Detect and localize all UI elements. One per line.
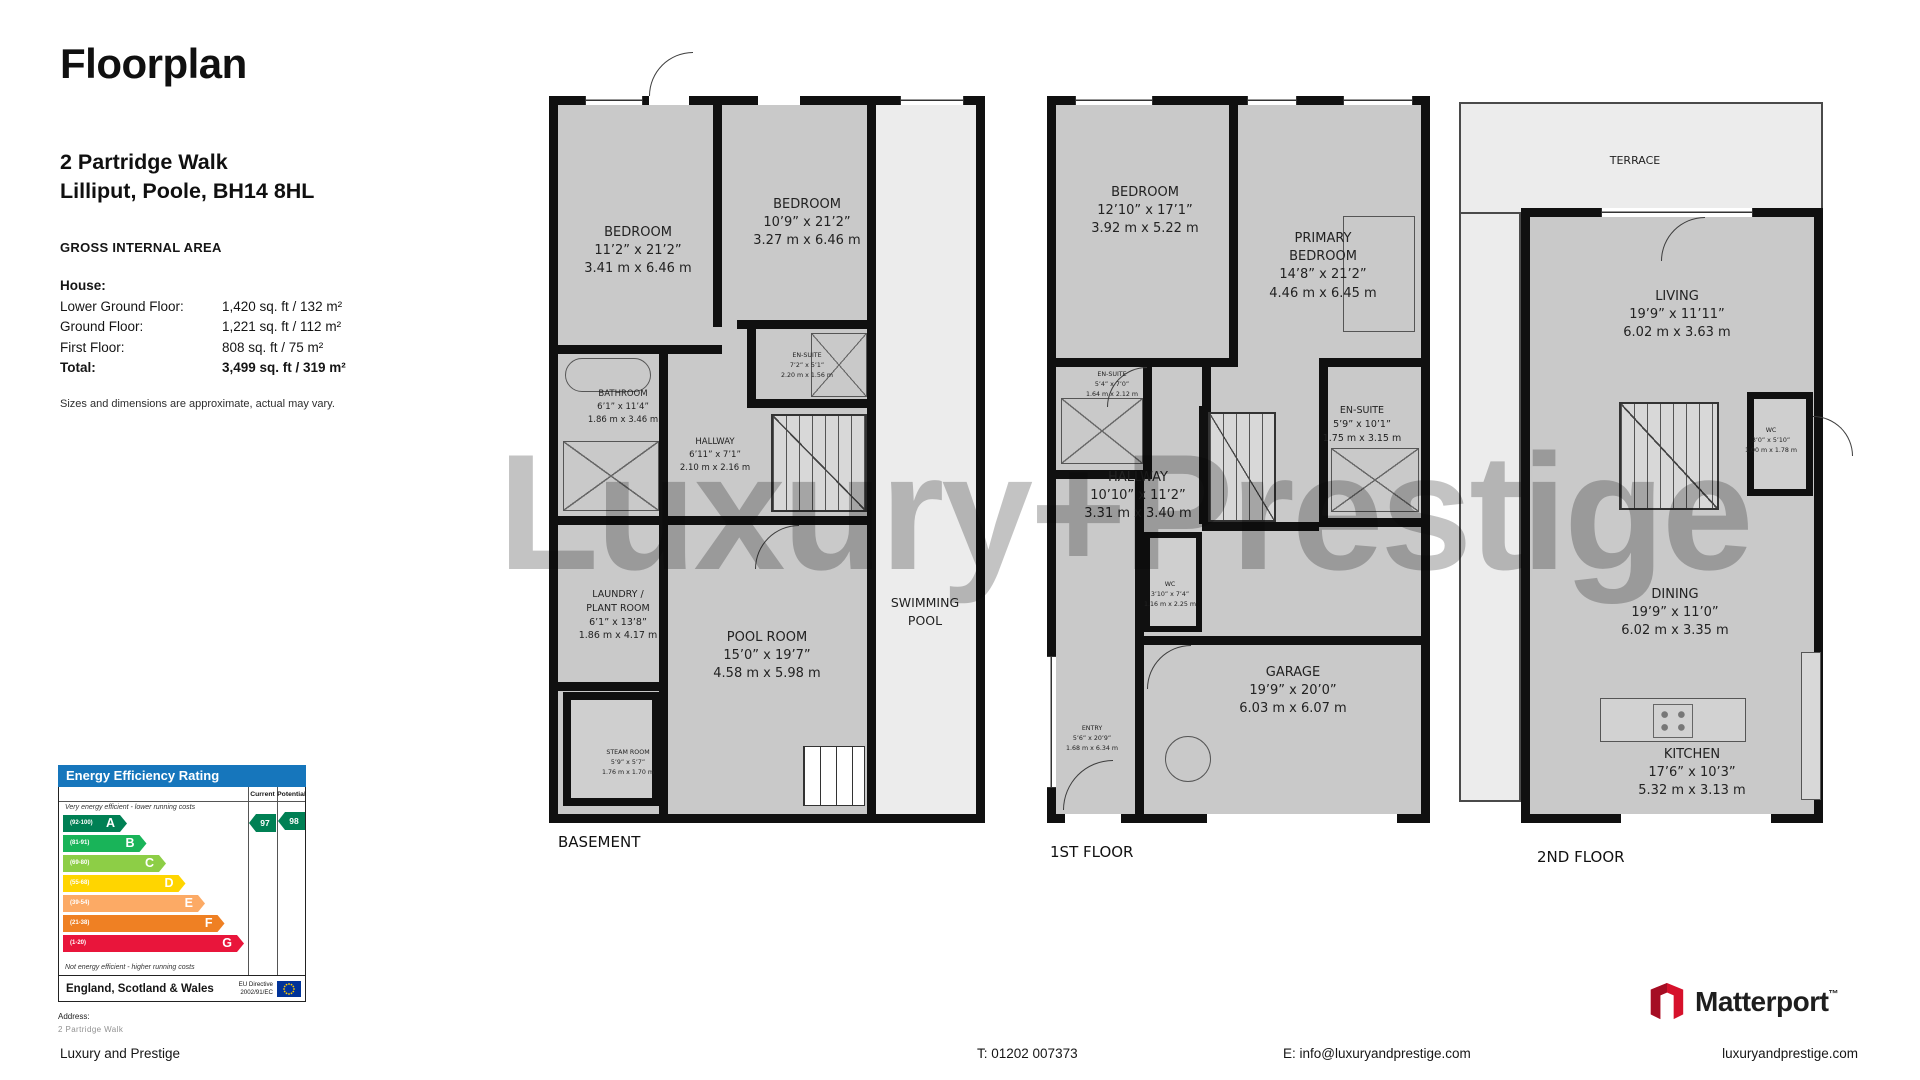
epc-top-note: Very energy efficient - lower running co… — [65, 804, 195, 811]
matterport-logo: Matterport™ — [1647, 982, 1838, 1022]
epc-col-current: Current — [248, 787, 277, 801]
room-label-laundry: LAUNDRY / PLANT ROOM 6’1” x 13’8” 1.86 m… — [560, 588, 676, 643]
room-label-dining: DINING 19’9” x 11’0” 6.02 m x 3.35 m — [1605, 586, 1745, 641]
wall — [1319, 518, 1421, 527]
trademark-symbol: ™ — [1828, 989, 1838, 1000]
room-label-primary-bedroom: PRIMARY BEDROOM 14’8” x 21’2” 4.46 m x 6… — [1253, 230, 1393, 303]
wall — [1135, 479, 1144, 814]
room-label-bathroom: BATHROOM 6’1” x 11’4” 1.86 m x 3.46 m — [563, 388, 683, 426]
room-label-garage: GARAGE 19’9” x 20’0” 6.03 m x 6.07 m — [1223, 664, 1363, 719]
epc-address-value: 2 Partridge Walk — [58, 1025, 306, 1034]
wall — [558, 516, 668, 525]
room-label-living: LIVING 19’9” x 11’11” 6.02 m x 3.63 m — [1607, 288, 1747, 343]
gia-row-first: First Floor: 808 sq. ft / 75 m² — [60, 338, 360, 359]
matterport-logo-icon — [1647, 982, 1687, 1022]
floor-label-second: 2ND FLOOR — [1537, 848, 1625, 866]
wall — [737, 320, 876, 329]
door-opening — [758, 96, 800, 105]
door-opening — [1621, 814, 1771, 823]
shower-icon — [1331, 448, 1419, 512]
room-label-wc: WC 3’10” x 7’4” 1.16 m x 2.25 m — [1139, 580, 1201, 609]
divider — [277, 787, 278, 975]
epc-current-arrow: 97 — [249, 814, 276, 832]
room-label-entry: ENTRY 5’6” x 20’9” 1.68 m x 6.34 m — [1051, 724, 1133, 753]
room-label-pool-room: POOL ROOM 15’0” x 19’7” 4.58 m x 5.98 m — [667, 629, 867, 684]
wall — [747, 399, 876, 408]
door-arc-icon — [1813, 416, 1853, 456]
address-line1: 2 Partridge Walk — [60, 148, 314, 177]
kitchen-counter — [1801, 652, 1821, 800]
room-label-ensuite-right: EN-SUITE 5’9” x 10’1” 1.75 m x 3.15 m — [1310, 404, 1414, 445]
epc-address: Address: 2 Partridge Walk — [58, 1012, 306, 1034]
epc-band-row: (21-38)F — [63, 915, 244, 935]
room-label-steam-room: STEAM ROOM 5’9” x 5’7” 1.76 m x 1.70 m — [573, 748, 683, 777]
room-label-hallway: HALLWAY 10’10” x 11’2” 3.31 m x 3.40 m — [1068, 469, 1208, 524]
window-marker — [900, 96, 964, 105]
room-label-kitchen: KITCHEN 17’6” x 10’3” 5.32 m x 3.13 m — [1622, 746, 1762, 801]
wall — [1135, 636, 1421, 645]
window-marker — [1601, 208, 1753, 217]
epc-chart: Energy Efficiency Rating Current Potenti… — [58, 765, 306, 1034]
wall — [1319, 367, 1328, 527]
room-label-swimming-pool: SWIMMING POOL — [877, 594, 973, 629]
window-marker — [1047, 656, 1056, 788]
wall — [1202, 522, 1319, 531]
bathtub-icon — [565, 358, 651, 392]
footer-website: luxuryandprestige.com — [1722, 1046, 1858, 1061]
epc-bottom-note: Not energy efficient - higher running co… — [65, 964, 195, 971]
size-disclaimer: Sizes and dimensions are approximate, ac… — [60, 398, 335, 410]
gia-row-lower-ground: Lower Ground Floor: 1,420 sq. ft / 132 m… — [60, 297, 360, 318]
footer-email: E: info@luxuryandprestige.com — [1283, 1046, 1471, 1061]
room-label-terrace: TERRACE — [1565, 154, 1705, 167]
wall — [659, 516, 876, 525]
footer-company: Luxury and Prestige — [60, 1046, 180, 1061]
epc-band-row: (92-100)A — [63, 815, 244, 835]
hob-icon — [1653, 704, 1693, 738]
window-marker — [585, 96, 643, 105]
property-address: 2 Partridge Walk Lilliput, Poole, BH14 8… — [60, 148, 314, 206]
epc-band-row: (81-91)B — [63, 835, 244, 855]
epc-band-row: (1-20)G — [63, 935, 244, 955]
second-floor-plan: TERRACE LIVING 19’9” x 11’11” 6.02 m x 3… — [1451, 96, 1832, 866]
wall — [1229, 105, 1238, 358]
page-title: Floorplan — [60, 40, 247, 88]
shower-icon — [563, 441, 659, 511]
gia-row-total: Total: 3,499 sq. ft / 319 m² — [60, 358, 360, 379]
address-line2: Lilliput, Poole, BH14 8HL — [60, 177, 314, 206]
gia-row-ground: Ground Floor: 1,221 sq. ft / 112 m² — [60, 317, 360, 338]
room-label-ensuite: EN-SUITE 7’2” x 5’1” 2.20 m x 1.56 m — [757, 351, 857, 380]
epc-region: England, Scotland & Wales — [66, 983, 214, 995]
wall — [747, 329, 756, 408]
divider — [59, 801, 305, 802]
matterport-wordmark: Matterport™ — [1695, 986, 1838, 1018]
epc-band-row: (69-80)C — [63, 855, 244, 875]
turning-circle-icon — [1165, 736, 1211, 782]
stairs-icon — [1208, 412, 1276, 522]
epc-title: Energy Efficiency Rating — [58, 765, 306, 787]
gia-row-house: House: — [60, 276, 360, 297]
eu-flag-icon — [277, 981, 301, 997]
stairs-icon — [771, 414, 867, 512]
epc-bands: (92-100)A(81-91)B(69-80)C(55-68)D(39-54)… — [63, 815, 244, 955]
room-label-bedroom: BEDROOM 12’10” x 17’1” 3.92 m x 5.22 m — [1075, 184, 1215, 239]
wall — [713, 105, 722, 327]
floor-label-first: 1ST FLOOR — [1050, 843, 1133, 861]
shower-icon — [1061, 398, 1143, 464]
door-opening — [1065, 814, 1121, 823]
floor-label-basement: BASEMENT — [558, 833, 640, 851]
epc-band-row: (55-68)D — [63, 875, 244, 895]
epc-potential-arrow: 98 — [278, 812, 305, 830]
door-opening — [649, 96, 689, 105]
wall — [1319, 358, 1421, 367]
epc-col-potential: Potential — [277, 787, 306, 801]
room-label-wc: WC 3’0” x 5’10” 1.00 m x 1.78 m — [1742, 426, 1800, 455]
pool-steps-icon — [803, 746, 865, 806]
first-floor-plan: BEDROOM 12’10” x 17’1” 3.92 m x 5.22 m P… — [1047, 96, 1437, 866]
divider — [248, 787, 249, 975]
garage-door-opening — [1207, 814, 1397, 823]
door-arc-icon — [649, 52, 693, 96]
room-label-bedroom2: BEDROOM 10’9” x 21’2” 3.27 m x 6.46 m — [741, 196, 873, 251]
gia-heading: GROSS INTERNAL AREA — [60, 240, 222, 255]
epc-body: Current Potential Very energy efficient … — [58, 787, 306, 976]
room-label-ensuite-left: EN-SUITE 5’4” x 7’0” 1.64 m x 2.12 m — [1062, 370, 1162, 399]
footer-phone: T: 01202 007373 — [977, 1046, 1078, 1061]
epc-region-row: England, Scotland & Wales EU Directive 2… — [58, 976, 306, 1002]
epc-address-label: Address: — [58, 1012, 306, 1021]
window-marker — [1343, 96, 1413, 105]
stairs-icon — [1619, 402, 1719, 510]
room-label-bedroom1: BEDROOM 11’2” x 21’2” 3.41 m x 6.46 m — [568, 224, 708, 279]
wall — [1056, 358, 1238, 367]
swimming-pool-area — [873, 105, 976, 814]
room-label-hallway: HALLWAY 6’11” x 7’1” 2.10 m x 2.16 m — [655, 436, 775, 474]
floorplan-page: Floorplan 2 Partridge Walk Lilliput, Poo… — [0, 0, 1920, 1080]
wall — [558, 682, 668, 691]
wall — [558, 345, 722, 354]
epc-band-row: (39-54)E — [63, 895, 244, 915]
gia-table: House: Lower Ground Floor: 1,420 sq. ft … — [60, 276, 360, 379]
basement-plan: BEDROOM 11’2” x 21’2” 3.41 m x 6.46 m BE… — [549, 96, 990, 866]
window-marker — [1075, 96, 1153, 105]
window-marker — [1247, 96, 1297, 105]
epc-directive: EU Directive 2002/91/EC — [239, 981, 273, 997]
